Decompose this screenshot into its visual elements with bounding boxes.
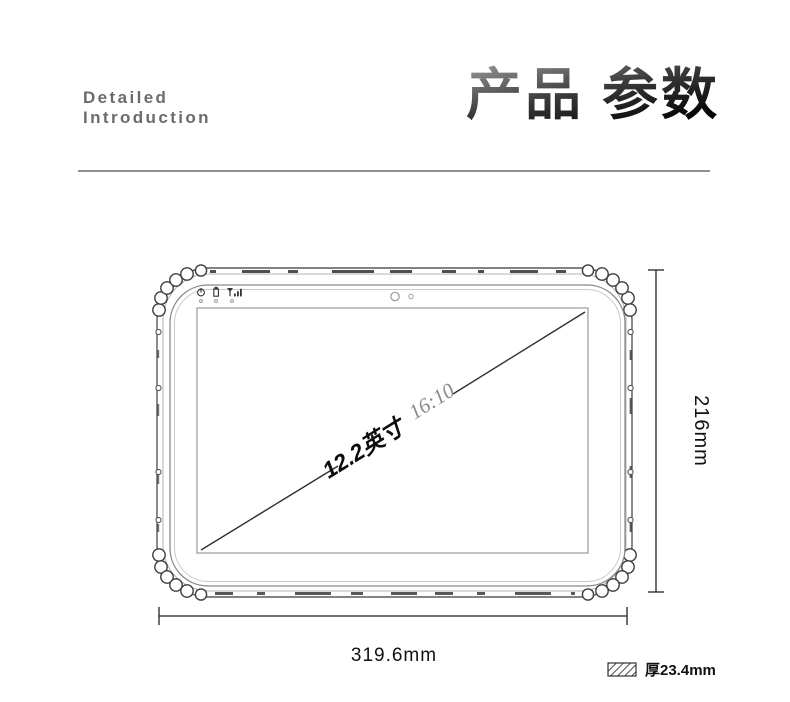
page-title-part2: 参数: [602, 63, 720, 126]
product-parameters-page: Detailed Introduction 产品参数: [0, 0, 790, 702]
light-sensor-dot: [409, 294, 413, 298]
page-title: 产品参数: [466, 64, 720, 126]
hatched-thickness-swatch: [608, 663, 636, 676]
subtitle-line-1: Detailed: [83, 88, 211, 108]
camera-dot: [391, 292, 399, 300]
width-dimension: 319.6mm: [159, 607, 627, 666]
header-divider: [78, 170, 710, 172]
page-subtitle: Detailed Introduction: [83, 88, 211, 128]
thickness-legend: 厚23.4mm: [608, 662, 716, 679]
height-dimension: 216mm: [648, 270, 712, 592]
height-dimension-label: 216mm: [690, 395, 712, 467]
subtitle-line-2: Introduction: [83, 108, 211, 128]
tablet-dimension-illustration: 12.2英寸 16:10 216mm 319.6mm 厚23.4mm: [55, 255, 735, 685]
thickness-label: 厚23.4mm: [645, 662, 716, 679]
page-title-part1: 产品: [466, 63, 584, 126]
width-dimension-label: 319.6mm: [351, 645, 437, 666]
